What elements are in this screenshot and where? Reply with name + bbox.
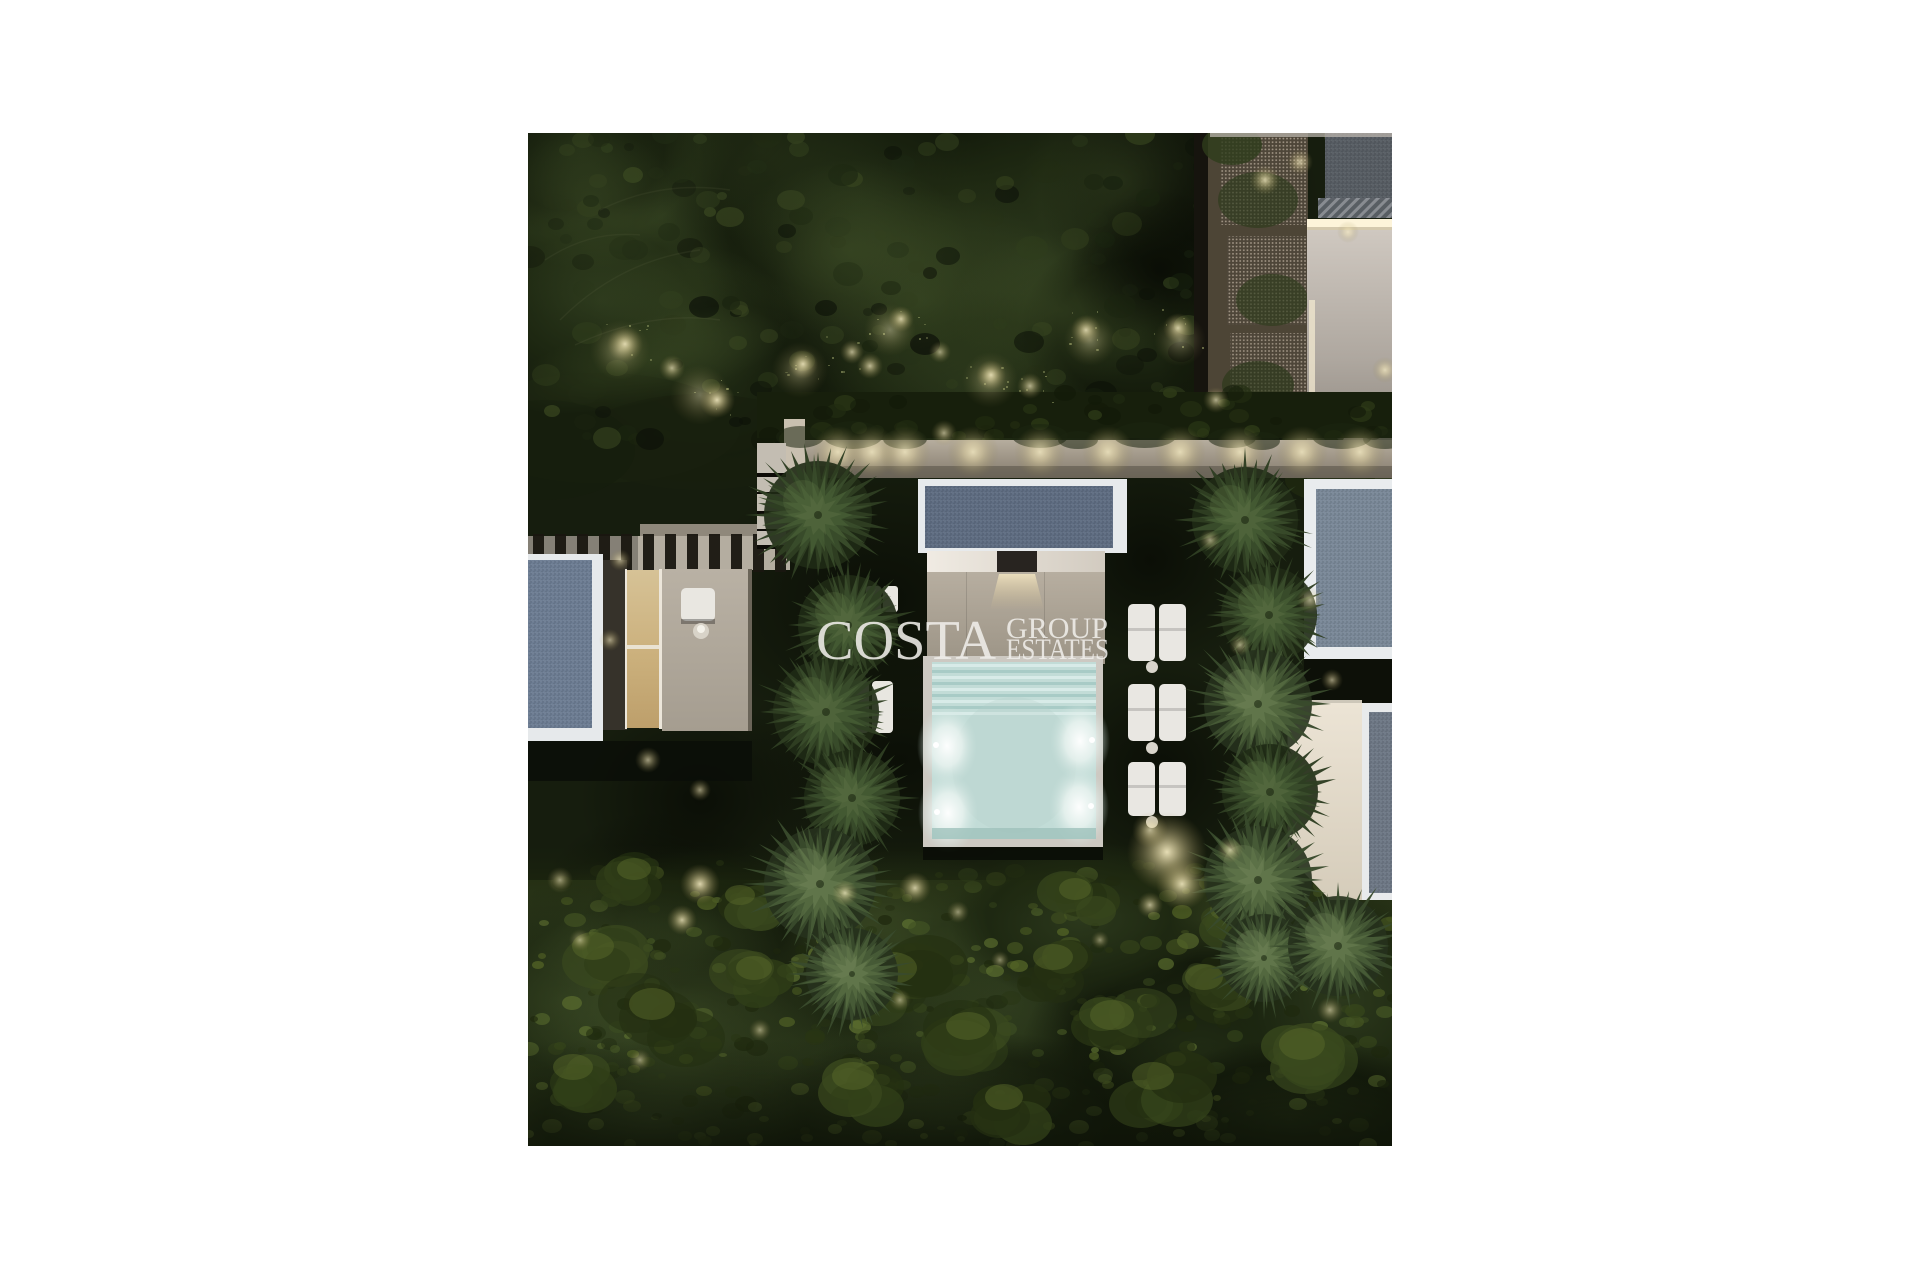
svg-text:ESTATES: ESTATES [1006,633,1109,666]
svg-text:COSTA: COSTA [816,610,997,672]
